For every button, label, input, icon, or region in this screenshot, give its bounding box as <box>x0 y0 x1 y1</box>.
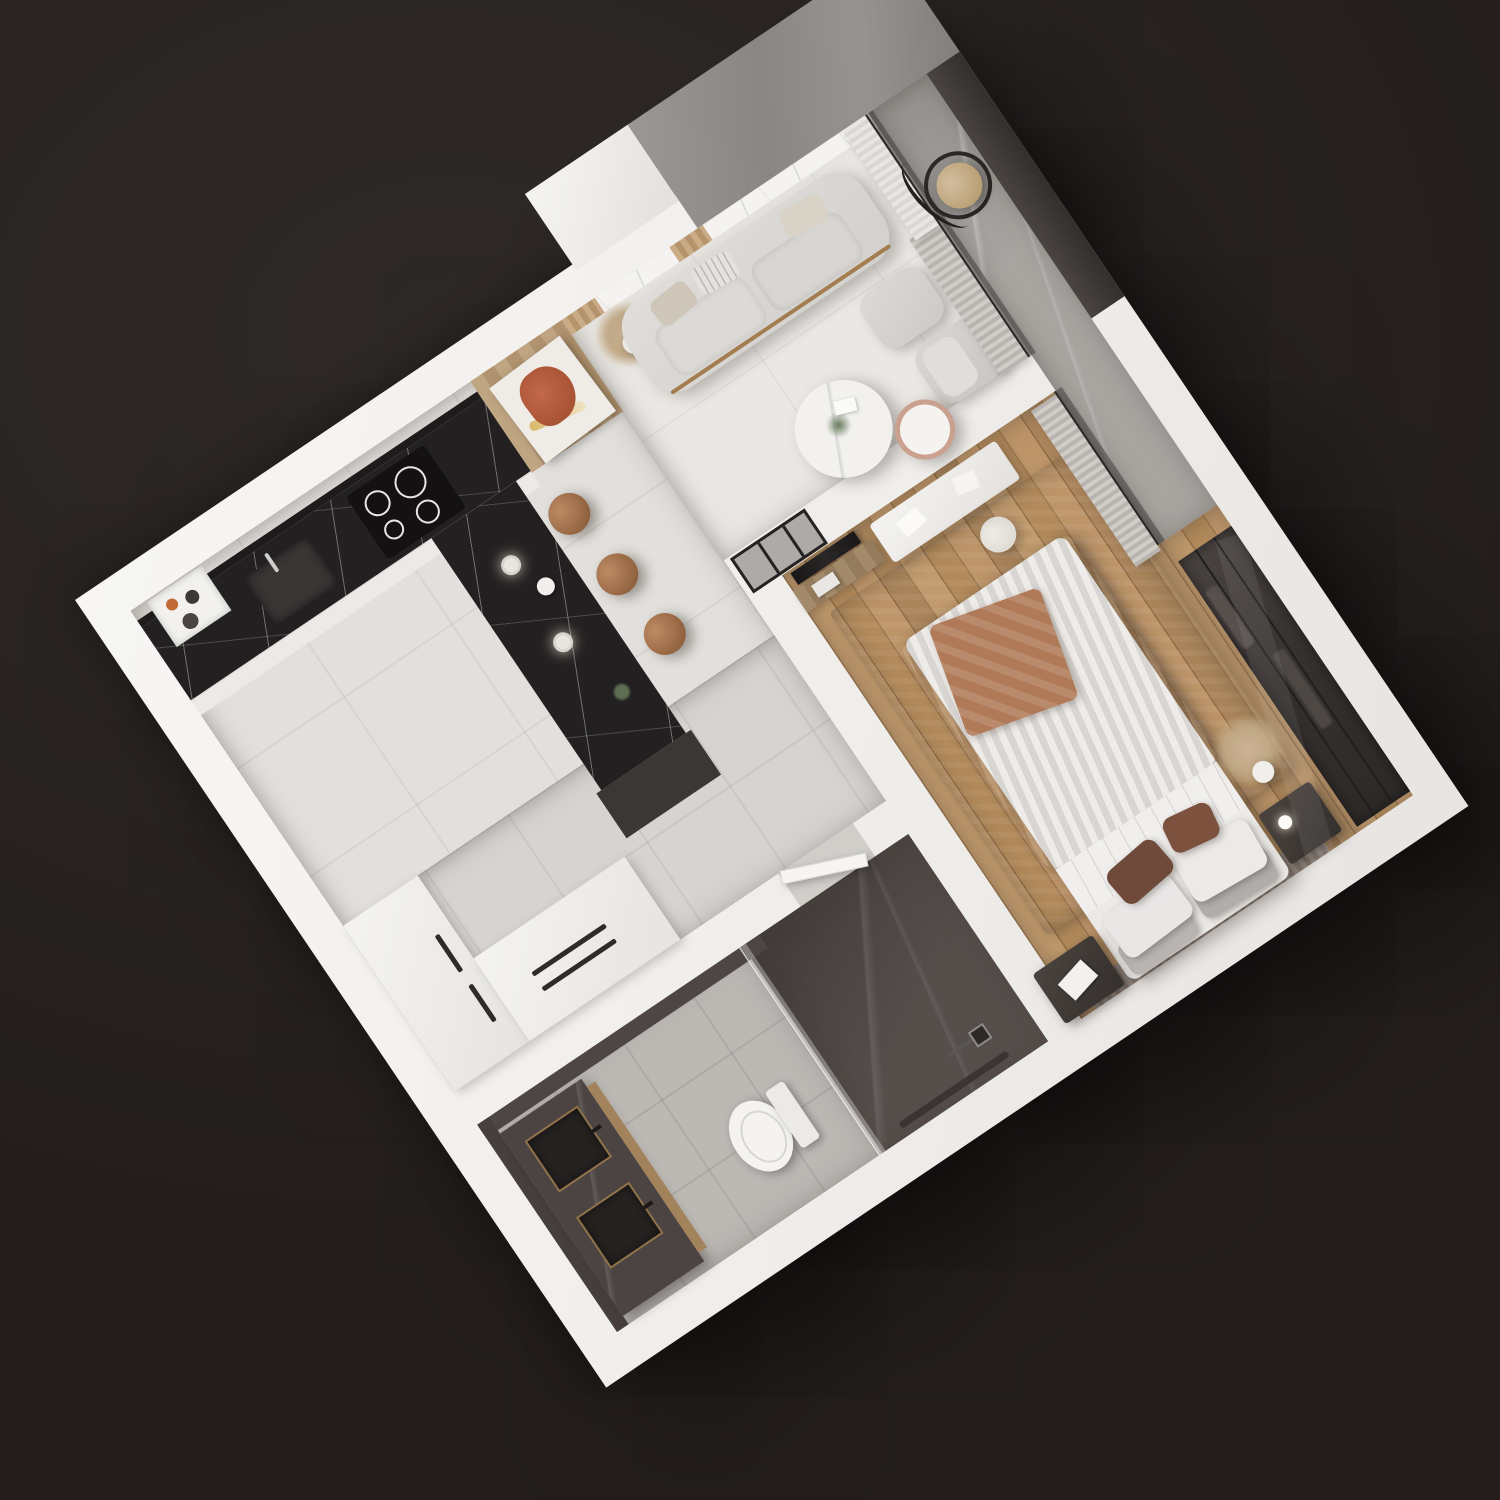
bedside-lamp <box>1275 813 1294 832</box>
vanity-basin <box>576 1182 664 1269</box>
vanity-basin <box>524 1105 612 1192</box>
dark-bowl <box>179 610 201 632</box>
hob-ring <box>360 485 396 521</box>
papers <box>951 470 980 496</box>
wardrobe-handle <box>468 983 497 1022</box>
hob-ring <box>380 516 408 544</box>
table-books <box>833 397 858 416</box>
cabinet-handle <box>541 938 617 991</box>
hob-ring <box>388 460 432 504</box>
tap <box>643 1200 654 1209</box>
open-magazine <box>1058 959 1099 1000</box>
hob-ring <box>411 495 444 528</box>
orange-jar <box>164 596 181 613</box>
papers <box>896 507 927 538</box>
dark-jar <box>183 587 202 606</box>
tap <box>592 1124 603 1133</box>
wardrobe-handle <box>435 934 464 973</box>
